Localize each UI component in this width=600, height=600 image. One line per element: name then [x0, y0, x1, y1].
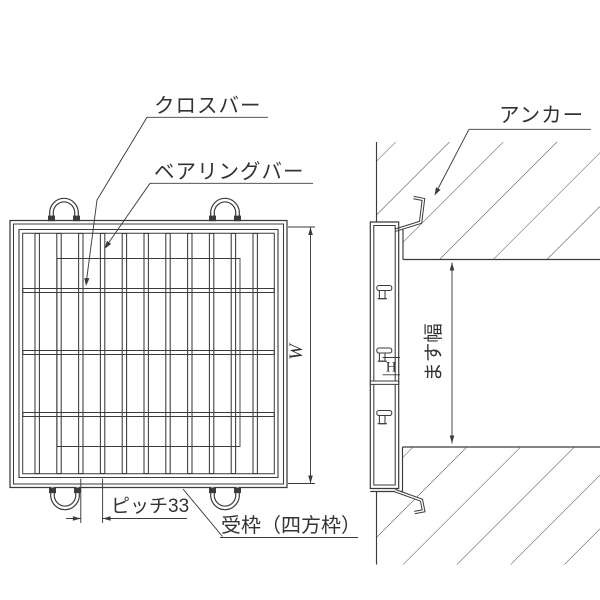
arrow-up [308, 227, 313, 235]
arrow-left [103, 516, 111, 521]
bearing-bar [209, 234, 213, 474]
bearing-bar [231, 234, 235, 474]
bearing-bar [253, 234, 257, 474]
bearing-bars [35, 234, 257, 474]
bearing-bar-leader [106, 183, 150, 246]
cross-bar-arrowhead [84, 278, 89, 286]
label-anchor: アンカー [499, 104, 584, 127]
bearing-bar [100, 234, 104, 474]
bearing-bar [166, 234, 170, 474]
bearing-bar-callout [105, 183, 314, 249]
bearing-bar [144, 234, 148, 474]
section-frame-midbar [370, 381, 398, 384]
label-bearing-bar: ベアリングバー [154, 161, 305, 184]
dim-basin-width-label: ます幅 [423, 323, 445, 382]
arrow-right [73, 516, 81, 521]
label-cross-bar: クロスバー [154, 95, 262, 118]
arrow-down [308, 476, 313, 484]
bearing-bar [35, 234, 39, 474]
bearing-bar [188, 234, 192, 474]
concrete-lower-hatch [377, 447, 600, 565]
cross-bar-leader [87, 117, 147, 279]
plan-view: W ピッチ33 クロスバー ベアリングバー [10, 95, 361, 538]
lifting-hook-bottom-left [49, 487, 81, 508]
arrow-up [450, 263, 455, 271]
lifting-hook-bottom-right [209, 487, 241, 508]
arrow-down [450, 436, 455, 444]
section-view: H ます幅 アンカー [370, 104, 600, 565]
label-receiving-frame: 受枠（四方枠） [221, 514, 361, 537]
dim-w-label: W [286, 342, 307, 360]
bearing-bar [57, 234, 61, 474]
grating-technical-drawing: H ます幅 アンカー [0, 0, 600, 600]
lifting-hook-top-right [209, 200, 241, 221]
concrete-upper-hatch [377, 142, 600, 260]
bearing-bar [122, 234, 126, 474]
drawing-canvas: H ます幅 アンカー [0, 0, 600, 600]
dim-pitch-label: ピッチ33 [111, 496, 189, 517]
dim-h-label: H [386, 360, 397, 376]
bearing-bar [79, 234, 83, 474]
lifting-hook-top-left [48, 200, 80, 221]
dim-basin-width [450, 263, 455, 444]
bearing-bar-arrowhead [105, 241, 112, 249]
